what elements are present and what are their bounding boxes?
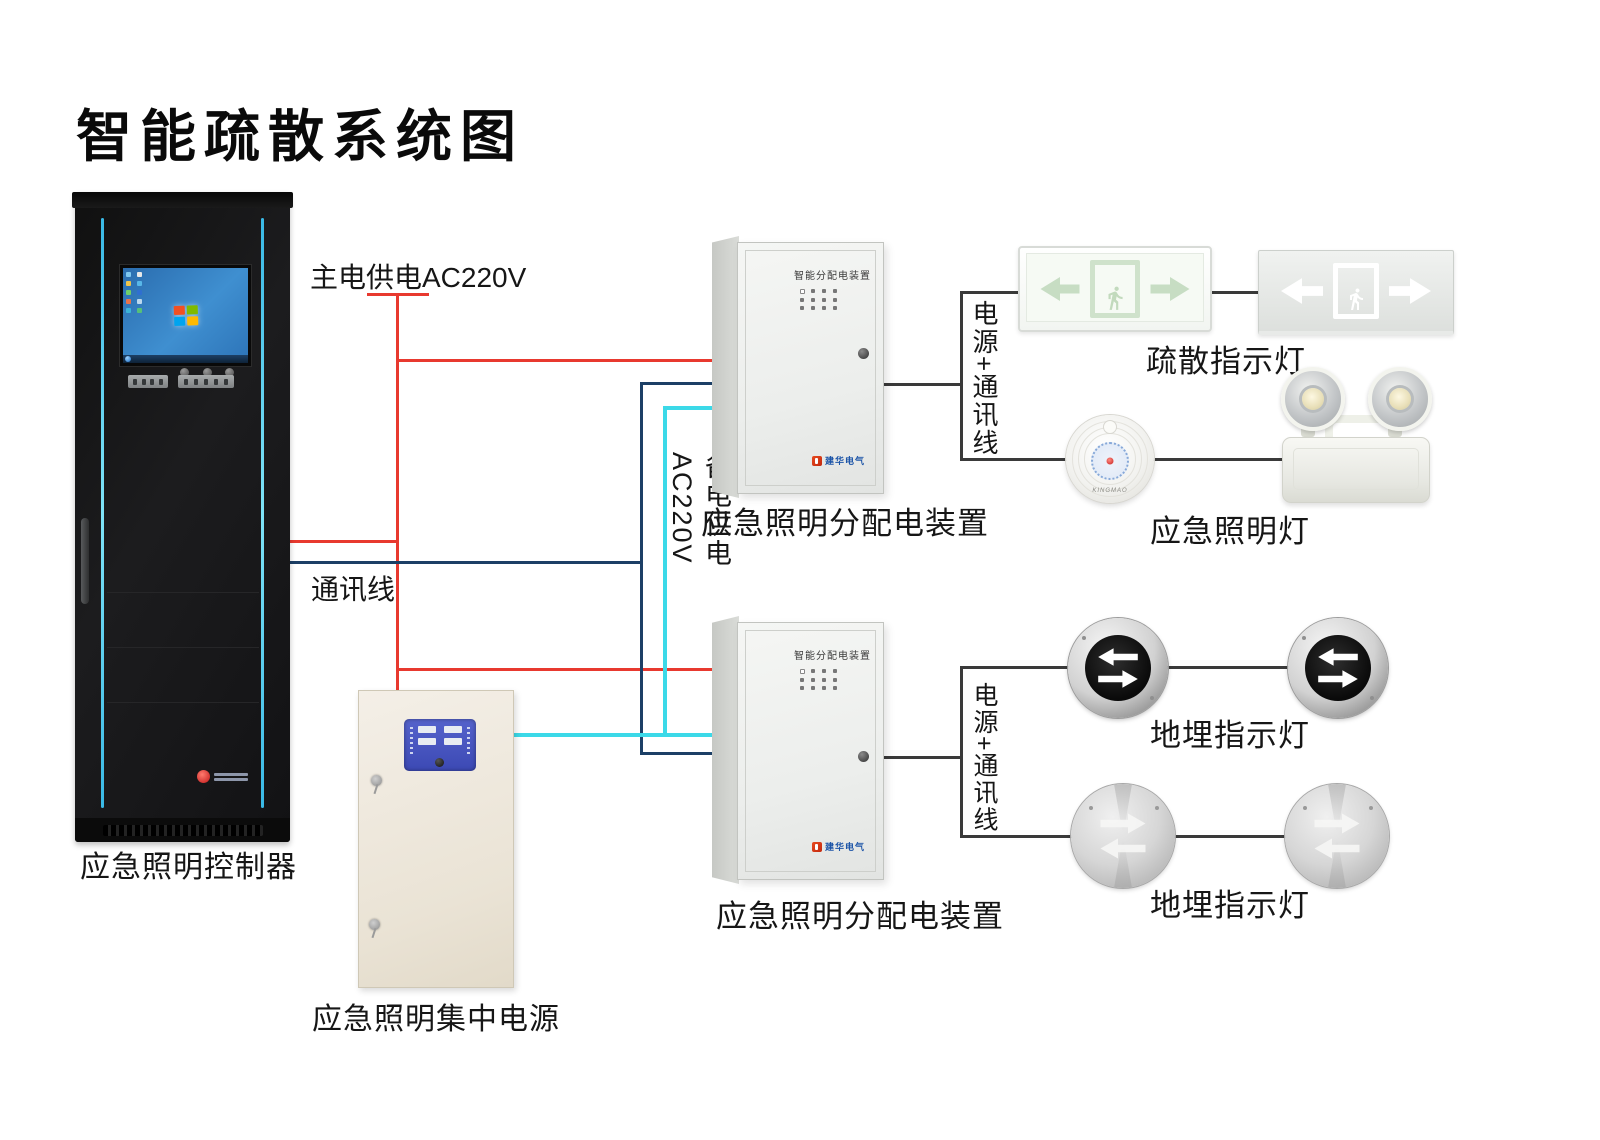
evacuation-system-diagram: 智能疏散系统图 主电供电AC220V 通讯线 备电供电AC220V 电源+通讯线… [0, 0, 1600, 1140]
label-power-comm-top: 电源+通讯线 [966, 300, 1003, 462]
ground-light-steel-1 [1071, 784, 1175, 888]
psu-keyhole-top [371, 775, 382, 786]
psu-led-column-left [410, 727, 413, 757]
dist-box2: 智能分配电装置 建华电气 [737, 622, 884, 880]
dist-box1-side [712, 236, 739, 498]
cabinet-seam [107, 592, 259, 593]
running-man-icon [1102, 283, 1128, 313]
exit-sign-2 [1258, 250, 1454, 335]
dist-box2-indicators [800, 669, 838, 690]
arrow-left-icon [1040, 277, 1080, 301]
label-ground-lights-2: 地埋指示灯 [1150, 880, 1310, 925]
wire-junction1-trunk [960, 291, 963, 461]
dist-box2-side [712, 616, 739, 884]
dist-box2-logo: 建华电气 [812, 840, 865, 853]
dist-box1-indicators [800, 289, 838, 310]
ground-light-face [1085, 635, 1151, 701]
dist-box2-door-text: 智能分配电装置 [794, 647, 871, 662]
cabinet-accent-right [261, 218, 264, 808]
wire-junction2-to-ground1 [960, 666, 1072, 669]
wire-main-power-to-dist1 [396, 359, 718, 362]
exit-door-icon [1333, 263, 1379, 319]
dist-box1-door [745, 250, 876, 486]
cabinet-connector-panel-left [128, 375, 168, 388]
double-arrow-icon [1316, 646, 1360, 690]
label-main-power: 主电供电AC220V [310, 256, 526, 296]
exit-door-icon [1090, 260, 1140, 318]
wire-backup-power-from-psu [512, 733, 718, 737]
double-arrow-icon [1096, 646, 1140, 690]
wire-main-power-to-dist2 [396, 668, 718, 671]
cabinet-base [75, 818, 290, 842]
wire-comm-to-dist1 [640, 382, 718, 385]
running-man-icon [1344, 284, 1368, 314]
psu-display-windows [418, 726, 462, 745]
wire-comm-trunk [640, 382, 643, 755]
label-dist-box1: 应急照明分配电装置 [701, 498, 989, 543]
label-dist-box2: 应急照明分配电装置 [716, 891, 1004, 936]
wire-junction1-to-exit-sign [960, 291, 1022, 294]
cabinet-display-screen [120, 265, 251, 366]
cabinet-top-cap [72, 192, 293, 208]
lamp-head-led [1302, 388, 1324, 410]
twin-lamp-head-right [1368, 367, 1432, 431]
page-title: 智能疏散系统图 [76, 92, 524, 173]
brand-text: 建华电气 [825, 840, 865, 853]
emergency-lighting-controller-cabinet [75, 192, 290, 842]
round-emergency-lamp: KINGMAO [1066, 415, 1154, 503]
arrow-left-icon [1281, 278, 1323, 304]
label-controller: 应急照明控制器 [80, 842, 297, 886]
psu-keyhole-bottom [369, 919, 380, 930]
ground-light-steel-2 [1285, 784, 1389, 888]
windows-logo [173, 305, 198, 326]
wire-junction2-to-ground2 [960, 835, 1074, 838]
brand-dot-icon [197, 770, 210, 783]
wire-dist2-to-junction [883, 756, 962, 759]
wire-ground2-link [1172, 835, 1290, 838]
psu-led-column-right [467, 727, 470, 757]
arrow-right-icon [1150, 277, 1190, 301]
arrow-right-icon [1389, 278, 1431, 304]
wire-main-power-to-controller [286, 540, 398, 543]
brand-chip-icon [812, 456, 822, 466]
brand-text-bars [214, 771, 248, 783]
double-arrow-engraved-icon [1098, 811, 1148, 861]
ground-light-black-2 [1288, 618, 1388, 718]
exit-sign-1 [1018, 246, 1212, 332]
wire-exit-sign1-to-sign2 [1206, 291, 1262, 294]
cabinet-accent-left [101, 218, 104, 808]
cabinet-vent [103, 825, 263, 836]
label-power-comm-bottom: 电源+通讯线 [966, 682, 1002, 834]
wire-backup-power-to-dist1 [663, 406, 718, 410]
wire-ground1-link [1166, 666, 1290, 669]
ground-light-black-1 [1068, 618, 1168, 718]
label-psu: 应急照明集中电源 [312, 994, 560, 1038]
start-orb-icon [125, 356, 131, 362]
cabinet-seam [107, 647, 259, 648]
centralized-power-supply-box [358, 690, 514, 988]
label-ground-lights-1: 地埋指示灯 [1150, 710, 1310, 755]
twin-lamp-face [1293, 448, 1419, 490]
wire-comm-to-dist2 [640, 752, 718, 755]
label-exit-signs: 疏散指示灯 [1146, 336, 1306, 381]
wire-main-power-trunk [396, 293, 399, 691]
brand-chip-icon [812, 842, 822, 852]
dist-box1-lock [858, 348, 869, 359]
dist-box1: 智能分配电装置 建华电气 [737, 242, 884, 494]
psu-control-panel [404, 719, 476, 771]
wire-round-lamp-to-twin-lamp [1150, 458, 1286, 461]
brand-text: 建华电气 [825, 454, 865, 467]
lamp-led-cluster [1091, 442, 1129, 480]
cabinet-connector-panel-right [178, 375, 234, 388]
wire-dist1-to-junction [880, 383, 962, 386]
dist-box1-door-text: 智能分配电装置 [794, 267, 871, 282]
desktop-icons [126, 272, 142, 313]
double-arrow-engraved-icon [1312, 811, 1362, 861]
label-comm-line: 通讯线 [311, 568, 395, 608]
psu-knob [435, 758, 444, 767]
lamp-brand-text: KINGMAO [1092, 488, 1127, 494]
cabinet-door-handle [81, 518, 89, 604]
wire-junction2-trunk [960, 666, 963, 838]
cabinet-brand-logo [197, 770, 248, 783]
dist-box1-logo: 建华电气 [812, 454, 865, 467]
cabinet-seam [107, 702, 259, 703]
twin-lamp-head-left [1281, 367, 1345, 431]
lamp-head-led [1389, 388, 1411, 410]
twin-head-emergency-lamp [1282, 437, 1430, 503]
lamp-test-button [1103, 420, 1117, 434]
dist-box2-lock [858, 751, 869, 762]
wire-comm-from-controller [286, 561, 643, 564]
ground-light-face [1305, 635, 1371, 701]
dist-box2-door [745, 630, 876, 872]
label-emergency-lights: 应急照明灯 [1150, 506, 1310, 551]
taskbar [123, 355, 248, 363]
